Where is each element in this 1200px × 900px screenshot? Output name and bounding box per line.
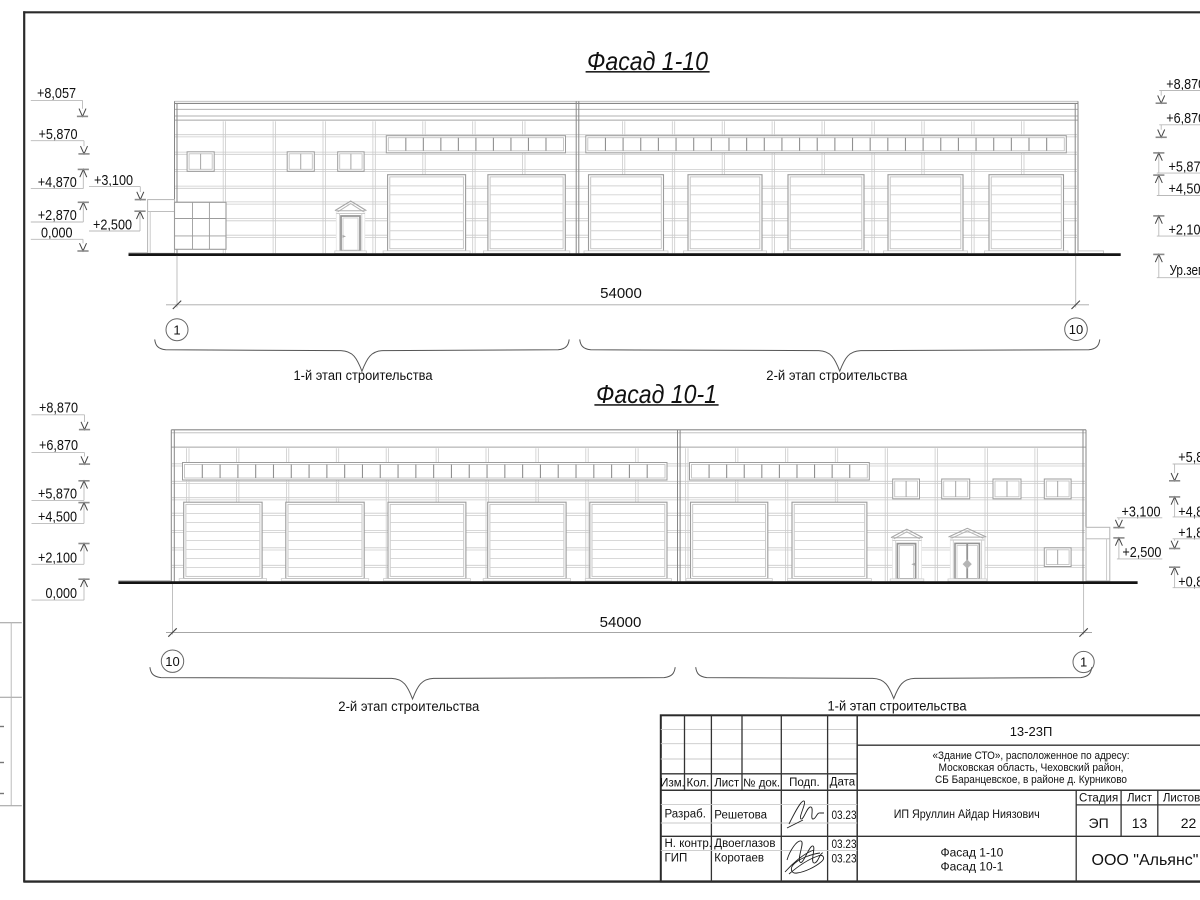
svg-text:Фасад 1-10: Фасад 1-10 — [940, 846, 1003, 860]
svg-text:Подп.: Подп. — [789, 777, 820, 789]
svg-text:ООО "Альянс": ООО "Альянс" — [1092, 852, 1199, 869]
svg-text:Дата: Дата — [830, 776, 856, 788]
svg-text:Н. контр.: Н. контр. — [665, 838, 712, 850]
svg-text:54000: 54000 — [600, 614, 642, 631]
svg-text:Лист: Лист — [1127, 793, 1153, 805]
svg-text:ЭП: ЭП — [1089, 815, 1109, 831]
svg-text:Московская область, Чеховский: Московская область, Чеховский район, — [939, 762, 1124, 774]
svg-text:Лист: Лист — [714, 777, 740, 789]
svg-text:Кол.: Кол. — [687, 777, 710, 789]
svg-text:+5,870: +5,870 — [1178, 449, 1200, 466]
svg-text:+8,870: +8,870 — [39, 399, 78, 416]
svg-text:1: 1 — [173, 322, 180, 337]
svg-text:Решетова: Решетова — [714, 809, 767, 821]
svg-text:Коротаев: Коротаев — [714, 853, 764, 865]
svg-text:№ док.: № док. — [743, 777, 780, 789]
svg-text:Ур.земли: Ур.земли — [1170, 262, 1200, 279]
svg-text:2-й этап строительства: 2-й этап строительства — [766, 368, 907, 383]
svg-text:Стадия: Стадия — [1079, 793, 1118, 805]
svg-text:Листов: Листов — [1163, 793, 1200, 805]
svg-text:03.23: 03.23 — [832, 839, 857, 851]
svg-text:10: 10 — [165, 654, 179, 669]
svg-text:10: 10 — [1069, 322, 1083, 337]
svg-text:+4,500: +4,500 — [1169, 181, 1200, 198]
svg-text:+8,057: +8,057 — [37, 85, 76, 102]
svg-text:03.23: 03.23 — [832, 810, 857, 822]
svg-text:«Здание СТО», расположенное по: «Здание СТО», расположенное по адресу: — [933, 750, 1130, 762]
svg-text:СБ Баранцевское, в районе д. К: СБ Баранцевское, в районе д. Курниково — [935, 774, 1127, 786]
svg-text:1-й этап строительства: 1-й этап строительства — [294, 368, 433, 383]
svg-text:22: 22 — [1181, 815, 1197, 831]
svg-text:Разраб.: Разраб. — [665, 809, 706, 821]
svg-text:ГИП: ГИП — [665, 853, 688, 865]
svg-text:+6,870: +6,870 — [39, 437, 78, 454]
svg-text:13-23П: 13-23П — [1010, 724, 1053, 739]
svg-text:Изм.: Изм. — [660, 777, 685, 789]
svg-text:ИП Яруллин Айдар Ниязович: ИП Яруллин Айдар Ниязович — [894, 807, 1040, 821]
svg-text:+4,870: +4,870 — [1178, 503, 1200, 520]
svg-text:+2,870: +2,870 — [38, 207, 77, 224]
svg-text:+5,870: +5,870 — [38, 485, 77, 502]
svg-text:54000: 54000 — [600, 285, 642, 302]
svg-text:+4,500: +4,500 — [38, 508, 77, 525]
svg-text:13: 13 — [1132, 815, 1148, 831]
svg-text:Двоеглазов: Двоеглазов — [714, 838, 775, 850]
svg-text:03.23: 03.23 — [832, 854, 857, 866]
svg-text:Фасад 10-1: Фасад 10-1 — [940, 860, 1003, 874]
svg-text:+2,100: +2,100 — [38, 549, 77, 566]
svg-text:1-й этап строительства: 1-й этап строительства — [828, 699, 967, 714]
svg-text:0,000: 0,000 — [46, 585, 78, 602]
svg-text:2-й этап строительства: 2-й этап строительства — [338, 699, 479, 714]
svg-text:1: 1 — [1080, 655, 1087, 670]
